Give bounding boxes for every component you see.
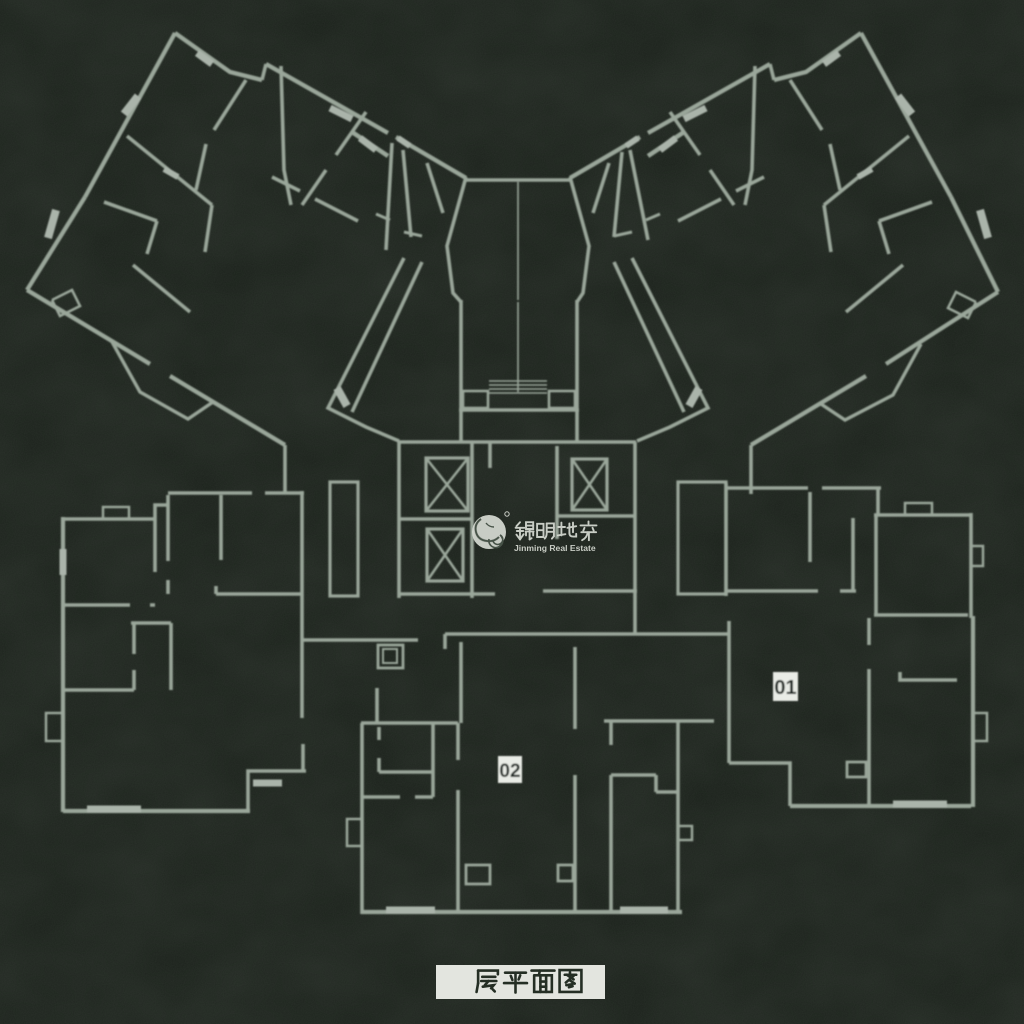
svg-text:Jinming Real Estate: Jinming Real Estate: [514, 543, 596, 553]
svg-text:02: 02: [499, 761, 520, 782]
svg-text:01: 01: [774, 677, 796, 699]
